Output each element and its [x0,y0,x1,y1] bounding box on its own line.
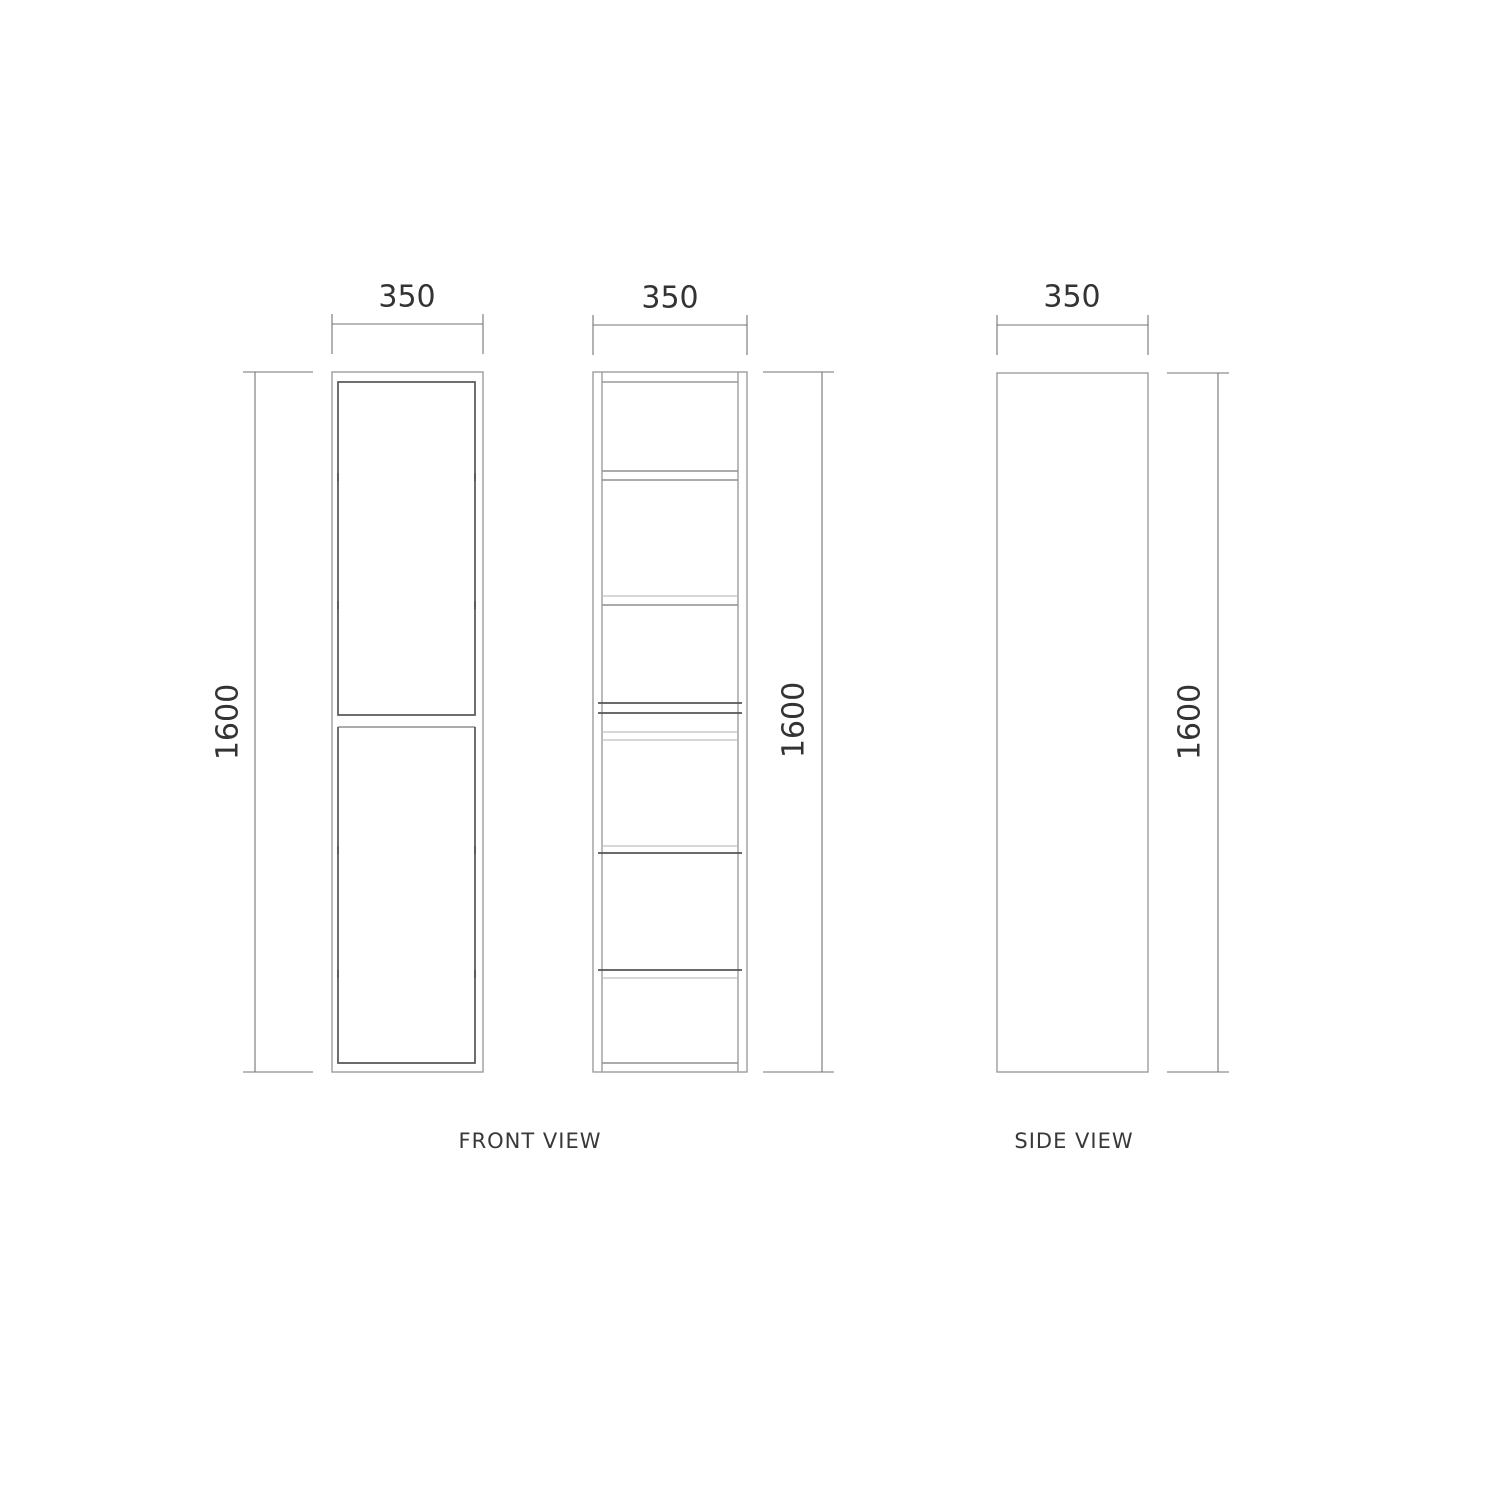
dimension-label-height: 1600 [777,682,812,758]
cabinet-outline [332,372,483,1072]
front-view-door-cabinet [332,372,483,1072]
upper-door-panel [338,382,475,715]
side-view-caption: SIDE VIEW [1014,1129,1133,1153]
height-dimension-side: 1600 [1167,373,1229,1072]
side-outline [997,373,1148,1072]
technical-drawing-cabinet: 350 350 350 1600 1600 1600 FRONT VIEW SI… [0,0,1500,1500]
height-dimension-front-door: 1600 [211,372,314,1072]
door-edge-marks [338,473,475,978]
front-view-open-cabinet [593,372,747,1072]
height-dimension-front-open: 1600 [763,372,834,1072]
lower-door-panel [338,727,475,1063]
carcass-outline [593,372,747,1072]
width-dimension-front-open: 350 [593,281,747,356]
dimension-label-height: 1600 [211,684,246,760]
dimension-label-width: 350 [1043,280,1100,315]
dimension-label-width: 350 [378,280,435,315]
width-dimension-side: 350 [997,280,1148,356]
width-dimension-front-door: 350 [332,280,483,355]
dimension-label-height: 1600 [1173,684,1208,760]
side-view-cabinet [997,373,1148,1072]
front-view-caption: FRONT VIEW [458,1129,601,1153]
dimension-label-width: 350 [641,281,698,316]
shelf-lines [598,471,742,1063]
